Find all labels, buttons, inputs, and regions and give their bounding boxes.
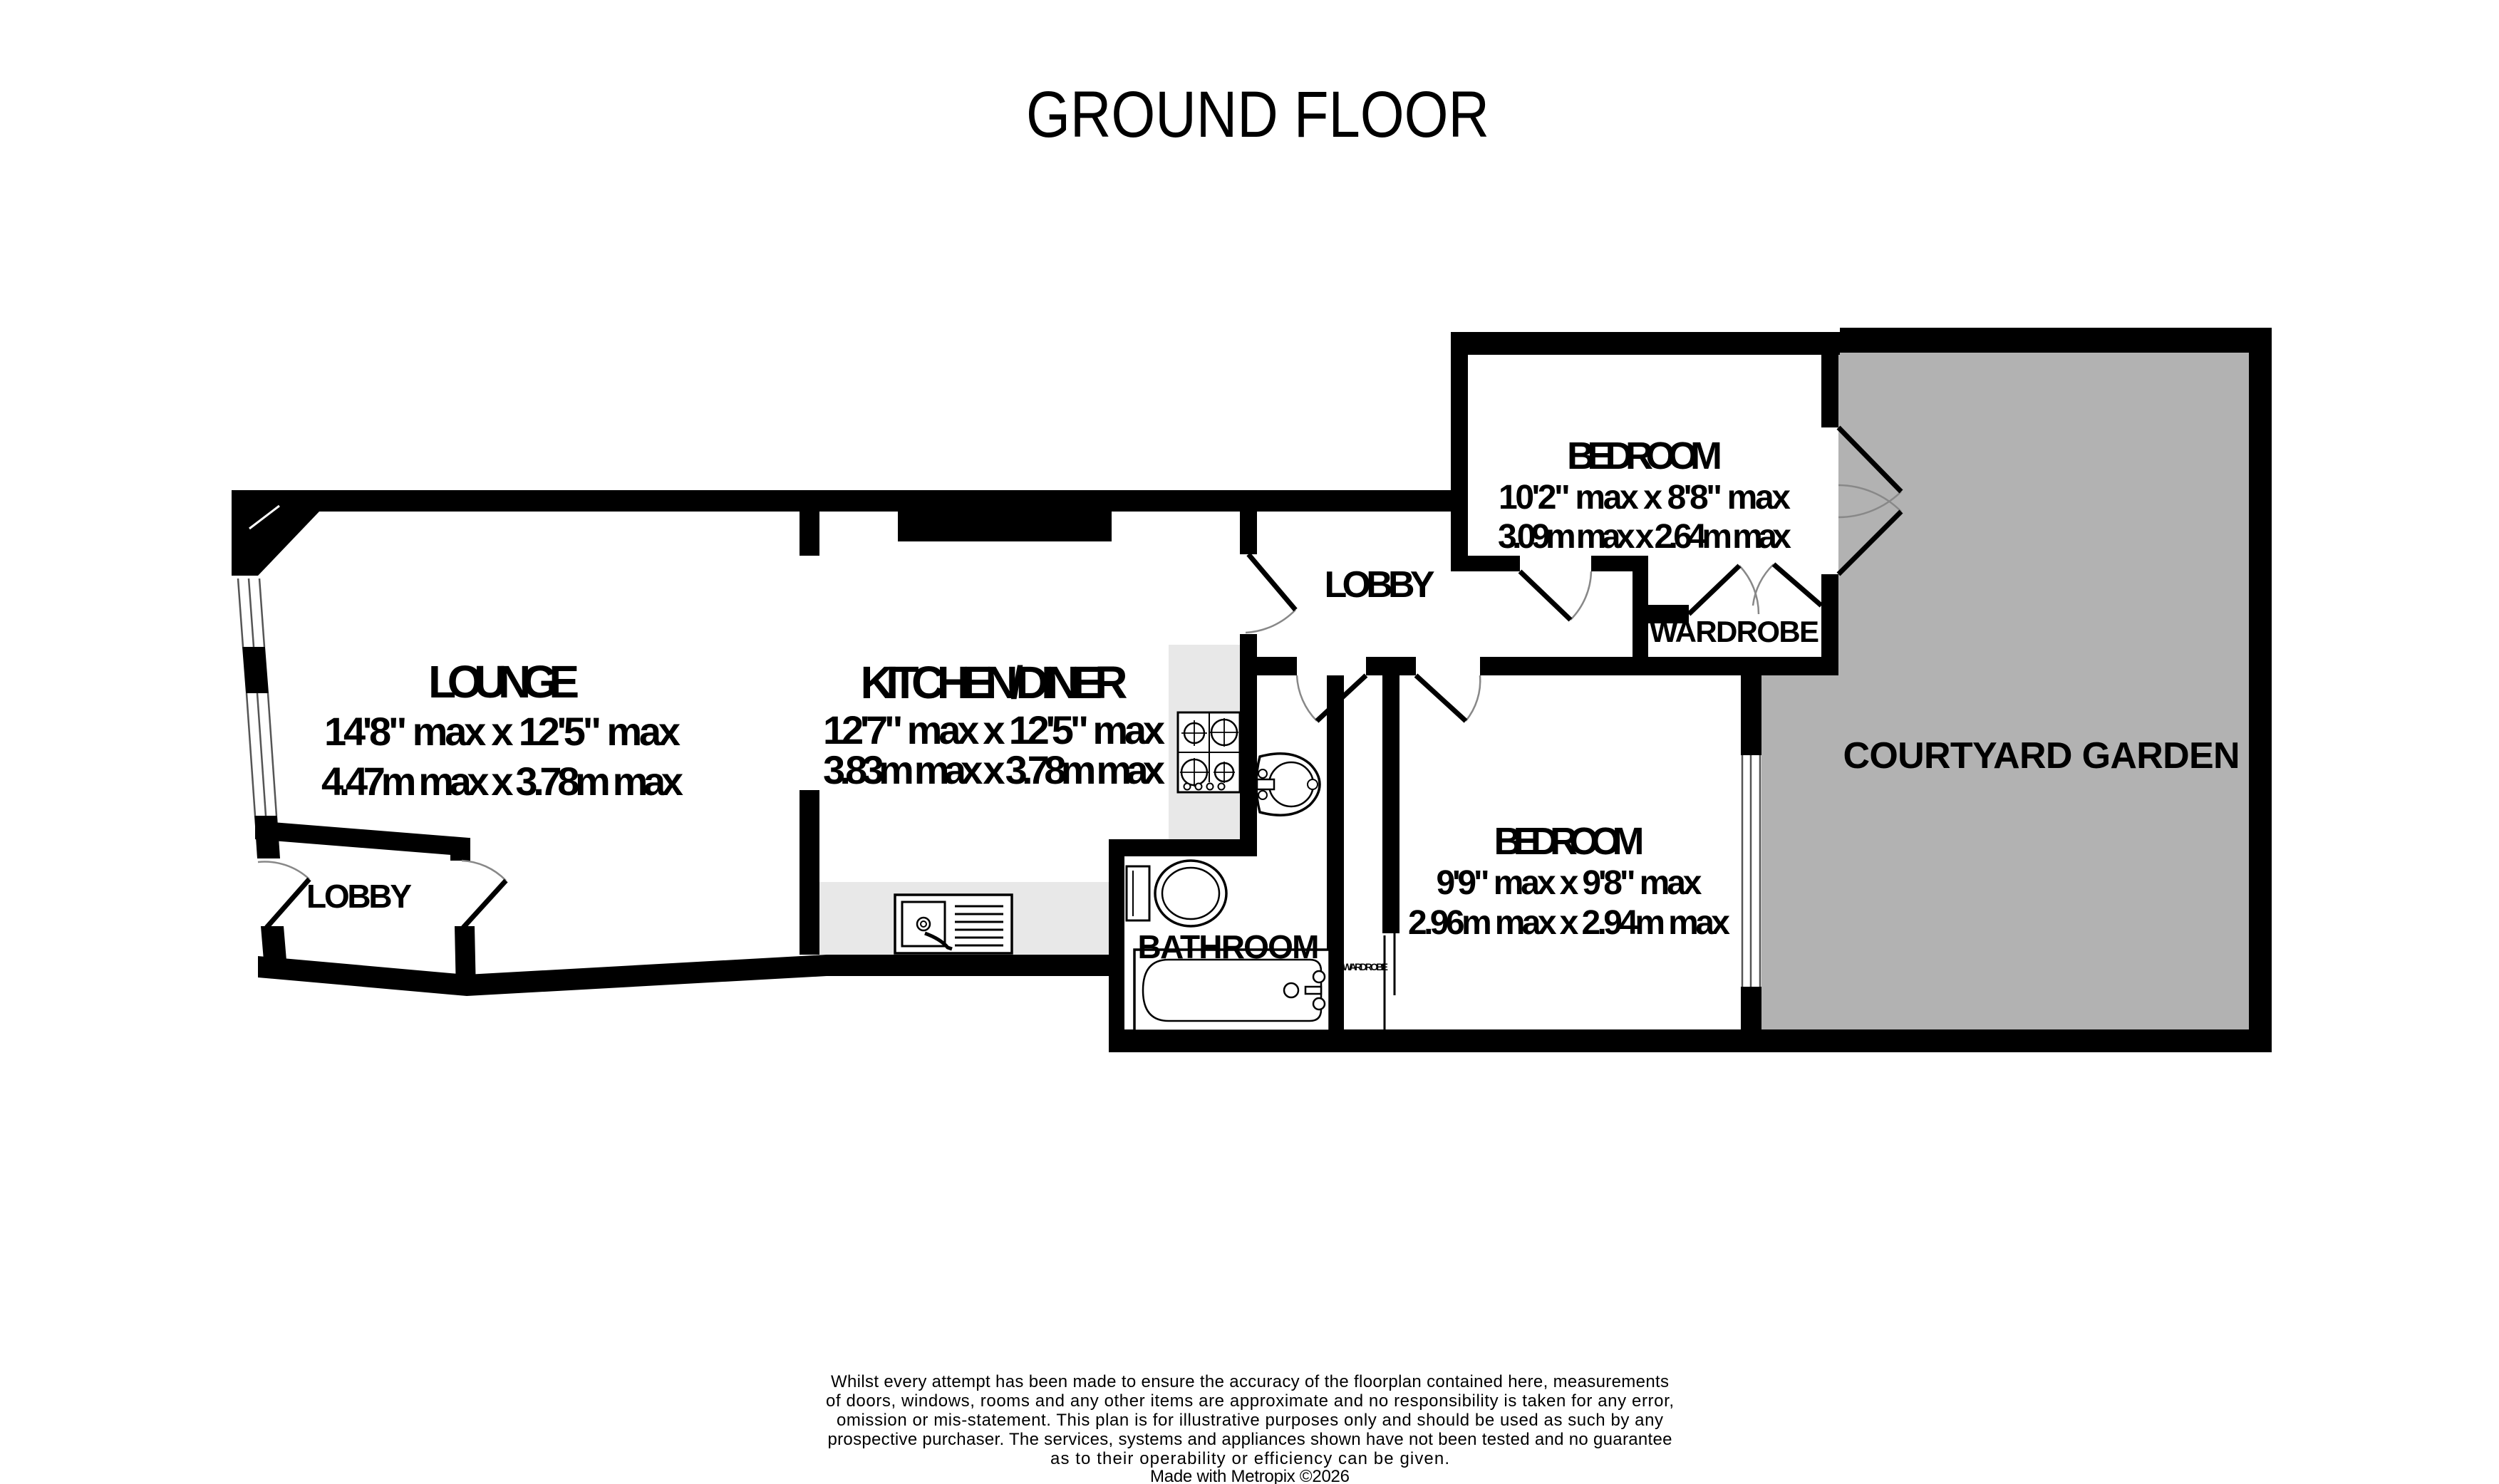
bedroom-bottom-dims-metric: 2.96m max x 2.94m max <box>1408 904 1730 942</box>
floorplan-page: GROUND FLOOR <box>0 0 2499 1484</box>
lounge-dims-imperial: 14'8" max x 12'5" max <box>324 709 681 754</box>
wall-bottom-main <box>1109 1029 2272 1052</box>
lounge-door <box>462 861 506 928</box>
kitchen-dims-metric: 3.83m max x 3.78m max <box>823 747 1165 792</box>
wall-courtyard-top <box>1840 328 2272 353</box>
disclaimer-line: of doors, windows, rooms and any other i… <box>826 1391 1674 1411</box>
courtyard-garden-area <box>1761 353 2249 1029</box>
kitchen-door <box>1246 554 1295 633</box>
toilet-icon <box>1127 861 1226 926</box>
wall-courtyard-right <box>2249 328 2272 1052</box>
entrance-door <box>258 862 309 928</box>
bedroom-bottom-label: BEDROOM <box>1494 820 1645 863</box>
courtyard-garden-label: COURTYARD GARDEN <box>1843 735 2240 777</box>
bedroom-top-label: BEDROOM <box>1567 435 1722 477</box>
disclaimer-line: Whilst every attempt has been made to en… <box>831 1372 1669 1391</box>
wash-basin-icon <box>1256 754 1320 815</box>
wall-lobby-left-top <box>255 821 469 856</box>
bedroom-bottom-dims-imperial: 9'9" max x 9'8" max <box>1437 864 1702 902</box>
lounge-room: LOUNGE 14'8" max x 12'5" max 4.47m max x… <box>321 656 683 804</box>
lounge-window-2 <box>246 693 277 816</box>
kitchen-sink-icon <box>895 895 1012 953</box>
lounge-label: LOUNGE <box>428 656 579 707</box>
bedroom-window <box>1741 755 1761 987</box>
lounge-window-1 <box>237 578 265 647</box>
bedroom-top-room: BEDROOM 10'2" max x 8'8" max 3.09m max x… <box>1498 435 1791 556</box>
disclaimer: Whilst every attempt has been made to en… <box>826 1372 1674 1484</box>
bedroom-bottom-door <box>1416 675 1480 721</box>
wall-bedroom-top <box>1451 332 1840 355</box>
hob-icon <box>1178 712 1240 792</box>
kitchen-dims-imperial: 12'7" max x 12'5" max <box>823 707 1165 752</box>
disclaimer-line: as to their operability or efficiency ca… <box>1050 1449 1449 1468</box>
wall-chimney-breast <box>898 512 1112 541</box>
bedroom-bottom-room: BEDROOM 9'9" max x 9'8" max 2.96m max x … <box>1408 820 1730 942</box>
bathroom-label: BATHROOM <box>1138 928 1320 965</box>
kitchen-room: KITCHEN/DINER 12'7" max x 12'5" max 3.83… <box>823 657 1165 792</box>
wardrobe-double-doors <box>1689 564 1821 614</box>
wardrobe-small-label: WARDROBE <box>1342 961 1388 972</box>
lounge-dims-metric: 4.47m max x 3.78m max <box>321 759 683 804</box>
wall-bottom-lounge <box>467 955 1109 996</box>
bedroom-top-dims-imperial: 10'2" max x 8'8" max <box>1499 479 1791 517</box>
disclaimer-line: prospective purchaser. The services, sys… <box>828 1430 1672 1449</box>
lobby-center-label: LOBBY <box>1325 564 1435 606</box>
wall-chamfer <box>232 490 324 576</box>
kitchen-label: KITCHEN/DINER <box>861 657 1128 708</box>
wardrobe-label: WARDROBE <box>1650 615 1819 648</box>
lobby-left-label: LOBBY <box>306 878 412 915</box>
disclaimer-line: Made with Metropix ©2026 <box>1150 1467 1350 1484</box>
wall-top <box>314 490 1451 512</box>
bedroom-top-door <box>1520 571 1591 620</box>
floorplan-canvas: GROUND FLOOR <box>0 0 2499 1484</box>
disclaimer-line: omission or mis-statement. This plan is … <box>837 1411 1663 1430</box>
wall-lobby-left-bottom <box>258 956 467 996</box>
page-title: GROUND FLOOR <box>1026 78 1489 151</box>
bedroom-top-dims-metric: 3.09m max x 2.64m max <box>1498 518 1791 556</box>
